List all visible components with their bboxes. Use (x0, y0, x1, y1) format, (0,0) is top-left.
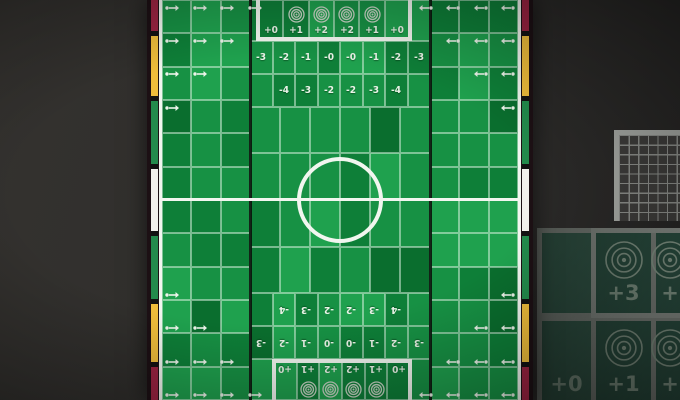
modifier-label: -2 (384, 52, 409, 63)
modifier-label: -1 (294, 337, 319, 348)
pitch-cell[interactable] (221, 200, 250, 233)
modifier-label: -0 (339, 337, 364, 348)
pitch-cell[interactable] (489, 67, 518, 100)
modifier-label: -3 (249, 337, 274, 348)
goal-box-modifier-label: +0 (386, 363, 411, 374)
game-table: +3++0+1+ -3-2-1-0-0-1-2-3-4-3-2-2-3-4-4-… (0, 0, 680, 400)
pitch-cell[interactable] (191, 133, 220, 166)
pitch-cell[interactable] (162, 167, 191, 200)
pitch-cell[interactable] (191, 0, 220, 33)
bullseye-icon (605, 329, 643, 367)
touchline-track-right (522, 0, 529, 400)
pitch-cell[interactable] (430, 267, 459, 300)
shot-card-label: + (656, 372, 680, 396)
pitch-cell[interactable] (489, 100, 518, 133)
pitch-cell[interactable] (162, 33, 191, 66)
center-circle (297, 157, 383, 243)
goal-box-modifier-label: +0 (385, 25, 410, 36)
pitch-cell[interactable] (340, 107, 370, 153)
modifier-label: -0 (316, 52, 341, 63)
pitch-cell[interactable] (162, 367, 191, 400)
pitch-cell[interactable] (221, 133, 250, 166)
pitch-cell[interactable] (191, 333, 220, 366)
pitch-cell[interactable] (191, 233, 220, 266)
pitch-cell[interactable] (310, 247, 340, 293)
pitch-cell[interactable] (459, 133, 488, 166)
pitch-cell[interactable] (221, 33, 250, 66)
pitch-cell[interactable] (489, 367, 518, 400)
pitch-cell[interactable] (221, 100, 250, 133)
pitch-cell[interactable] (280, 107, 310, 153)
pitch-cell[interactable] (410, 359, 430, 400)
shot-card-label: +0 (542, 372, 591, 396)
pitch-cell[interactable] (221, 267, 250, 300)
pitch-cell[interactable] (459, 0, 488, 33)
pitch-cell[interactable] (250, 153, 280, 200)
pitch-cell[interactable] (459, 333, 488, 366)
pitch-cell[interactable] (250, 200, 280, 247)
pitch-cell[interactable] (400, 200, 430, 247)
track-segment-red (522, 367, 529, 400)
pitch-cell[interactable] (430, 0, 459, 33)
modifier-label: -1 (361, 52, 386, 63)
track-segment-green (151, 236, 158, 299)
pitch-cell[interactable] (430, 300, 459, 333)
track-segment-red (151, 367, 158, 400)
track-segment-red (151, 0, 158, 31)
pitch-cell[interactable] (430, 33, 459, 66)
modifier-label: -4 (384, 85, 409, 96)
pitch-cell[interactable] (430, 333, 459, 366)
pitch-cell[interactable] (250, 359, 274, 400)
modifier-label: -4 (384, 304, 409, 315)
track-segment-yellow (522, 304, 529, 362)
pitch-cell[interactable] (221, 0, 250, 33)
grass-grid: -3-2-1-0-0-1-2-3-4-3-2-2-3-4-4-3-2-2-3-4… (162, 0, 518, 400)
pitch-cell[interactable] (489, 133, 518, 166)
modifier-label: -2 (271, 52, 296, 63)
track-segment-green (522, 101, 529, 164)
shot-card-cell[interactable] (542, 233, 591, 313)
modifier-label: -3 (249, 52, 274, 63)
pitch-cell[interactable] (221, 333, 250, 366)
pitch-cell[interactable] (162, 67, 191, 100)
pitch-cell[interactable] (191, 200, 220, 233)
pitch-cell[interactable] (162, 333, 191, 366)
pitch-board: -3-2-1-0-0-1-2-3-4-3-2-2-3-4-4-3-2-2-3-4… (147, 0, 533, 400)
shot-card-frame (591, 228, 680, 318)
pitch-cell[interactable] (280, 247, 310, 293)
pitch-cell[interactable] (459, 367, 488, 400)
modifier-label: -2 (384, 337, 409, 348)
track-segment-green (522, 236, 529, 299)
goal-box-modifier-label: +1 (360, 25, 385, 36)
pitch-cell[interactable] (191, 267, 220, 300)
pitch-cell[interactable] (489, 267, 518, 300)
track-segment-yellow (151, 304, 158, 362)
pitch-cell[interactable] (191, 100, 220, 133)
pitch-cell[interactable] (489, 0, 518, 33)
pitch-cell[interactable] (370, 247, 400, 293)
pitch-cell[interactable] (400, 247, 430, 293)
pitch-cell[interactable] (459, 267, 488, 300)
pitch-cell[interactable] (430, 200, 459, 233)
modifier-label: -2 (316, 85, 341, 96)
pitch-cell[interactable] (191, 33, 220, 66)
goal-box-modifier-label: +1 (296, 363, 321, 374)
pitch-cell[interactable] (430, 133, 459, 166)
goal-box-modifier-label: +0 (258, 25, 283, 36)
pitch-cell[interactable] (191, 300, 220, 333)
goal-box-modifier-label: +2 (309, 25, 334, 36)
modifier-label: -1 (294, 52, 319, 63)
pitch-cell[interactable] (340, 247, 370, 293)
pitch-cell[interactable] (459, 233, 488, 266)
goal-box-modifier-label: +1 (284, 25, 309, 36)
pitch-cell[interactable] (430, 100, 459, 133)
modifier-label: -3 (361, 304, 386, 315)
pitch-cell[interactable] (459, 300, 488, 333)
shot-card-cell[interactable]: +1 (596, 321, 651, 400)
goal-box-modifier-label: +2 (334, 25, 359, 36)
pitch-cell[interactable] (430, 233, 459, 266)
bullseye-icon (651, 329, 680, 367)
pitch-cell[interactable] (191, 167, 220, 200)
pitch-cell[interactable] (162, 267, 191, 300)
pitch-cell[interactable] (310, 107, 340, 153)
pitch-cell[interactable] (221, 300, 250, 333)
goal-box-modifier-label: +1 (364, 363, 389, 374)
pitch-cell[interactable] (459, 167, 488, 200)
track-segment-red (522, 0, 529, 31)
pitch-cell[interactable] (459, 33, 488, 66)
pitch-cell[interactable] (400, 153, 430, 200)
pitch-cell[interactable] (370, 107, 400, 153)
pitch-cell[interactable] (250, 293, 273, 326)
goal-box-modifier-label: +2 (318, 363, 343, 374)
pitch-cell[interactable] (221, 233, 250, 266)
modifier-label: -2 (271, 337, 296, 348)
pitch-cell[interactable] (191, 367, 220, 400)
pitch-cell[interactable] (221, 67, 250, 100)
pitch-cell[interactable] (191, 67, 220, 100)
pitch-cell[interactable] (408, 293, 431, 326)
sideline-right (518, 0, 522, 400)
pitch-cell[interactable] (162, 200, 191, 233)
track-segment-white (151, 169, 158, 231)
modifier-label: -4 (271, 304, 296, 315)
track-segment-white (522, 169, 529, 231)
pitch-cell[interactable] (162, 133, 191, 166)
modifier-label: -2 (316, 304, 341, 315)
touchline-track-left (151, 0, 158, 400)
shot-card-cell[interactable]: + (656, 321, 680, 400)
pitch-cell[interactable] (430, 67, 459, 100)
pitch-cell[interactable] (489, 333, 518, 366)
pitch-cell[interactable] (430, 367, 459, 400)
modifier-label: -0 (316, 337, 341, 348)
pitch-cell[interactable] (489, 233, 518, 266)
pitch-cell[interactable] (489, 33, 518, 66)
track-segment-yellow (151, 36, 158, 96)
goal-box-modifier-label: +2 (341, 363, 366, 374)
modifier-label: -2 (339, 304, 364, 315)
pitch-cell[interactable] (489, 167, 518, 200)
pitch-cell[interactable] (459, 67, 488, 100)
shot-card-panel[interactable]: +3++0+1+ (537, 228, 680, 400)
pitch-cell[interactable] (162, 300, 191, 333)
modifier-label: -3 (294, 304, 319, 315)
goal-box-modifier-label: +0 (273, 363, 298, 374)
pitch-cell[interactable] (162, 100, 191, 133)
pitch-cell[interactable] (489, 200, 518, 233)
pitch-cell[interactable] (410, 0, 430, 41)
modifier-label: -4 (271, 85, 296, 96)
modifier-label: -3 (361, 85, 386, 96)
track-segment-yellow (522, 36, 529, 96)
pitch-cell[interactable] (400, 107, 430, 153)
modifier-label: -1 (361, 337, 386, 348)
pitch-cell[interactable] (250, 107, 280, 153)
pitch-cell[interactable] (489, 300, 518, 333)
pitch-cell[interactable] (430, 167, 459, 200)
pitch-cell[interactable] (250, 247, 280, 293)
shot-card-label: +1 (596, 372, 651, 396)
shot-card-cell[interactable]: +0 (542, 321, 591, 400)
pitch-cell[interactable] (459, 100, 488, 133)
modifier-label: -3 (406, 52, 431, 63)
modifier-label: -0 (339, 52, 364, 63)
modifier-label: -3 (294, 85, 319, 96)
pitch-cell[interactable] (459, 200, 488, 233)
modifier-label: -2 (339, 85, 364, 96)
pitch-cell[interactable] (162, 233, 191, 266)
pitch-cell[interactable] (408, 74, 431, 107)
pitch-cell[interactable] (162, 0, 191, 33)
modifier-label: -3 (406, 337, 431, 348)
pitch-cell[interactable] (250, 74, 273, 107)
track-segment-green (151, 101, 158, 164)
pitch-cell[interactable] (221, 367, 250, 400)
pitch-cell[interactable] (221, 167, 250, 200)
score-grid-panel[interactable] (614, 130, 680, 221)
